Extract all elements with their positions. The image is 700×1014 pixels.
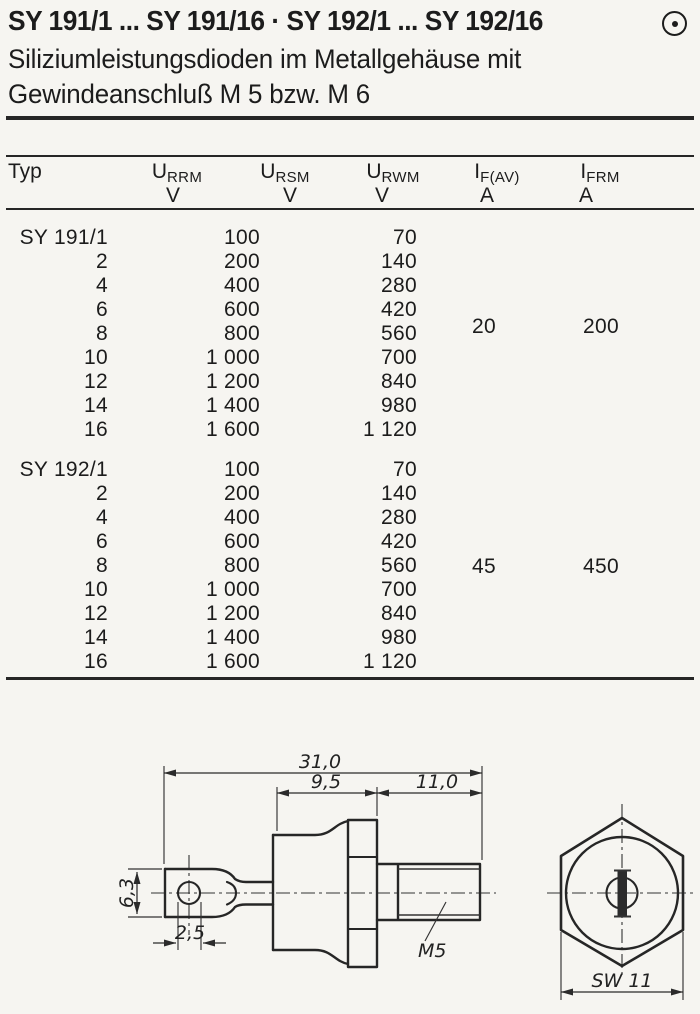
solder-tab-outline [165, 869, 273, 882]
cell-typ: 2 [96, 250, 108, 274]
solder-tab-outline [165, 905, 273, 918]
table-row: 4400280 [0, 274, 700, 298]
col-header-urwm: URWM [366, 160, 419, 186]
cell-typ: 16 [84, 650, 108, 674]
col-unit-ursm: V [283, 184, 297, 208]
cell-urwm: 1 120 [363, 418, 417, 442]
cell-urrm: 1 200 [206, 370, 260, 394]
wrench-label: SW 11 [591, 970, 652, 992]
cell-urwm: 280 [381, 506, 417, 530]
dim-label-overall: 31,0 [299, 751, 341, 773]
tab-slot [618, 870, 628, 917]
dim-label-tab-height: 6,3 [116, 878, 138, 908]
dim-label-hole: 2,5 [175, 922, 205, 944]
dim-label-stud: 11,0 [416, 771, 458, 793]
cell-urwm: 70 [393, 226, 417, 250]
cell-urwm: 1 120 [363, 650, 417, 674]
cell-urwm: 700 [381, 346, 417, 370]
cell-typ: SY 191/1 [20, 226, 108, 250]
cell-urwm: 420 [381, 298, 417, 322]
cell-urwm: 70 [393, 458, 417, 482]
thread-leader-line [425, 902, 446, 941]
cell-urrm: 200 [224, 482, 260, 506]
cell-typ: 4 [96, 274, 108, 298]
cell-typ: 10 [84, 346, 108, 370]
stud-outline [377, 864, 480, 920]
cell-typ: 16 [84, 418, 108, 442]
cell-urwm: 560 [381, 554, 417, 578]
table-row: 101 000700 [0, 346, 700, 370]
cell-urrm: 1 000 [206, 578, 260, 602]
table-row: 141 400980 [0, 394, 700, 418]
cell-typ: 4 [96, 506, 108, 530]
table-row: 6600420 [0, 530, 700, 554]
col-header-urrm: URRM [152, 160, 202, 186]
cell-urrm: 800 [224, 554, 260, 578]
side-view: 31,0 9,5 11,0 6,3 2,5 M5 [116, 751, 496, 967]
circle-dot-icon [662, 11, 687, 36]
col-header-ifrm: IFRM [580, 160, 619, 186]
circle-dot-center [672, 21, 678, 27]
cell-typ: 6 [96, 530, 108, 554]
cell-urwm: 140 [381, 250, 417, 274]
cell-typ: 8 [96, 322, 108, 346]
cell-urrm: 1 400 [206, 394, 260, 418]
table-row: 2200140 [0, 250, 700, 274]
table-header-rule [6, 208, 694, 210]
cell-typ: SY 192/1 [20, 458, 108, 482]
cell-urrm: 1 400 [206, 626, 260, 650]
page-subtitle: Siliziumleistungsdioden im Metallgehäuse… [8, 42, 521, 112]
cell-typ: 12 [84, 602, 108, 626]
col-header-ifav: IF(AV) [474, 160, 519, 186]
table-row: 121 200840 [0, 602, 700, 626]
page-title: SY 191/1 ... SY 191/16 · SY 192/1 ... SY… [8, 5, 543, 37]
cell-typ: 14 [84, 394, 108, 418]
cell-urrm: 600 [224, 530, 260, 554]
cell-urrm: 100 [224, 226, 260, 250]
table-row: 121 200840 [0, 370, 700, 394]
end-view: SW 11 [547, 804, 697, 1000]
group-ifrm-value: 200 [573, 315, 629, 339]
table-row: 2200140 [0, 482, 700, 506]
subtitle-line-2: Gewindeanschluß M 5 bzw. M 6 [8, 77, 521, 112]
cell-urwm: 980 [381, 626, 417, 650]
cell-urrm: 1 600 [206, 418, 260, 442]
table-row: 101 000700 [0, 578, 700, 602]
table-top-rule [6, 155, 694, 157]
cell-urrm: 600 [224, 298, 260, 322]
header-rule [6, 116, 694, 120]
thread-minor-lines [398, 869, 480, 915]
cell-urrm: 1 200 [206, 602, 260, 626]
package-drawing: 31,0 9,5 11,0 6,3 2,5 M5 SW 11 [0, 690, 700, 1014]
table-row: SY 191/110070 [0, 226, 700, 250]
thread-label: M5 [418, 940, 446, 962]
col-unit-urrm: V [166, 184, 180, 208]
cell-typ: 14 [84, 626, 108, 650]
col-unit-ifav: A [480, 184, 494, 208]
cell-typ: 2 [96, 482, 108, 506]
table-bottom-rule [6, 677, 694, 680]
cell-typ: 8 [96, 554, 108, 578]
cell-typ: 6 [96, 298, 108, 322]
cell-urrm: 1 000 [206, 346, 260, 370]
subtitle-line-1: Siliziumleistungsdioden im Metallgehäuse… [8, 42, 521, 77]
col-header-ursm: URSM [260, 160, 309, 186]
cell-urwm: 980 [381, 394, 417, 418]
cell-urrm: 1 600 [206, 650, 260, 674]
group-ifrm-value: 450 [573, 555, 629, 579]
cell-urrm: 400 [224, 506, 260, 530]
table-group-sy191: SY 191/110070 2200140 4400280 6600420 88… [0, 226, 700, 442]
cell-urrm: 100 [224, 458, 260, 482]
cell-urrm: 800 [224, 322, 260, 346]
table-row: SY 192/110070 [0, 458, 700, 482]
cell-urwm: 840 [381, 370, 417, 394]
group-ifav-value: 45 [472, 555, 496, 579]
cell-urwm: 140 [381, 482, 417, 506]
dim-label-body: 9,5 [311, 771, 341, 793]
cell-urwm: 700 [381, 578, 417, 602]
col-header-typ: Typ [8, 160, 42, 184]
cell-urwm: 840 [381, 602, 417, 626]
case-bottom [273, 950, 348, 964]
datasheet-page: SY 191/1 ... SY 191/16 · SY 192/1 ... SY… [0, 0, 700, 1014]
col-unit-urwm: V [375, 184, 389, 208]
table-group-sy192: SY 192/110070 2200140 4400280 6600420 88… [0, 458, 700, 674]
group-ifav-value: 20 [472, 315, 496, 339]
table-row: 161 6001 120 [0, 650, 700, 674]
cell-urwm: 420 [381, 530, 417, 554]
cell-typ: 10 [84, 578, 108, 602]
table-row: 141 400980 [0, 626, 700, 650]
cell-urrm: 400 [224, 274, 260, 298]
cell-typ: 12 [84, 370, 108, 394]
case-top [273, 821, 348, 835]
cell-urrm: 200 [224, 250, 260, 274]
col-unit-ifrm: A [579, 184, 593, 208]
cell-urwm: 560 [381, 322, 417, 346]
table-row: 161 6001 120 [0, 418, 700, 442]
table-row: 4400280 [0, 506, 700, 530]
cell-urwm: 280 [381, 274, 417, 298]
